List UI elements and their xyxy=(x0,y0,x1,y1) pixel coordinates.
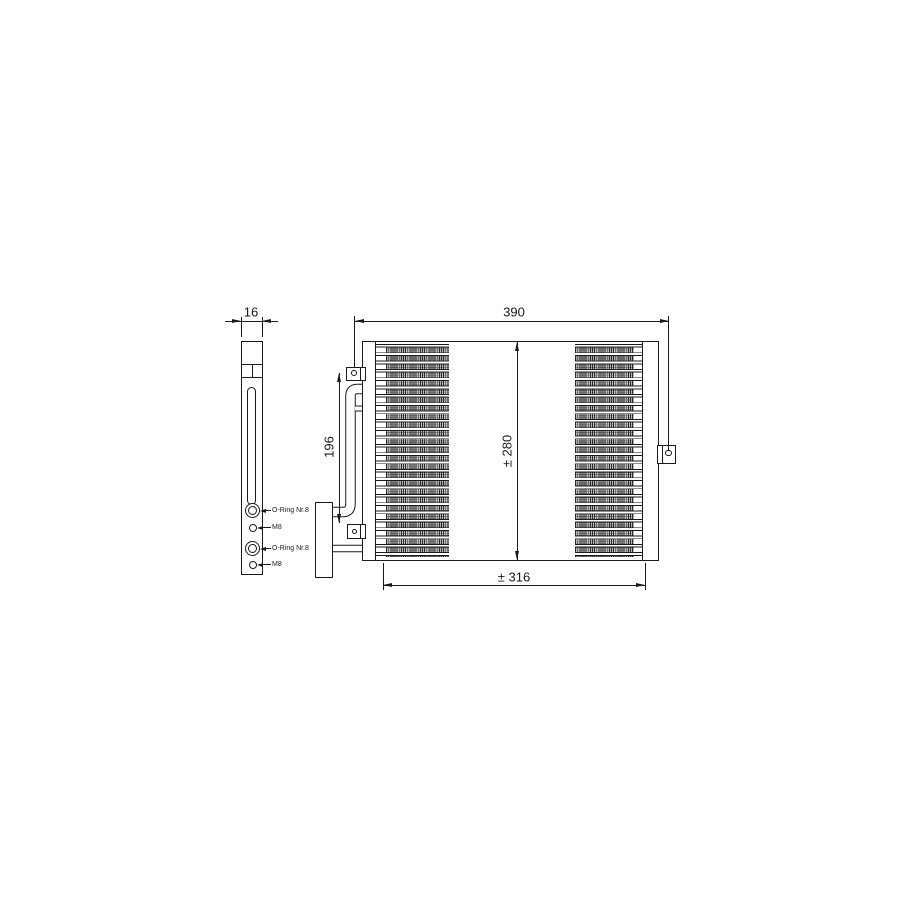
technical-drawing-canvas: O-Ring Nr.8 M8 O-Ring Nr.8 M8 16 xyxy=(0,0,900,900)
bracket-fold-line xyxy=(662,446,663,463)
leader-line xyxy=(265,548,271,549)
m8-hole xyxy=(249,524,257,532)
core-fins-left xyxy=(386,344,449,557)
bracket-hole xyxy=(665,450,672,457)
dim-arrow-icon xyxy=(232,319,241,323)
dim-value: 196 xyxy=(322,436,335,458)
dim-value: 390 xyxy=(503,305,525,318)
dim-extension-line xyxy=(383,563,384,590)
dim-line xyxy=(355,321,669,322)
port-label: M8 xyxy=(272,561,282,568)
dim-value: ± 316 xyxy=(498,571,530,584)
dim-line xyxy=(339,373,340,523)
tube-ends-left xyxy=(376,344,386,557)
bracket-fold-line xyxy=(360,525,361,538)
dim-extension-line xyxy=(262,317,263,337)
side-view-band-divider xyxy=(252,364,253,377)
side-view-slot xyxy=(247,387,256,505)
core-bottom-edge xyxy=(362,560,659,561)
connection-block xyxy=(315,502,334,578)
dim-arrow-icon xyxy=(262,319,271,323)
bracket-hole xyxy=(351,370,357,376)
leader-line xyxy=(265,510,271,511)
dim-extension-line xyxy=(354,316,355,367)
dim-arrow-icon xyxy=(337,373,341,382)
dim-extension-line xyxy=(645,563,646,590)
dim-value: 16 xyxy=(244,305,258,318)
core-top-edge xyxy=(362,341,659,342)
dim-arrow-icon xyxy=(337,514,341,523)
port-label: M8 xyxy=(272,524,282,531)
leader-line xyxy=(262,527,271,528)
dim-arrow-icon xyxy=(383,583,392,587)
core-fins-right xyxy=(575,344,634,557)
dim-line xyxy=(383,585,645,586)
o-ring-port-inner xyxy=(248,544,257,553)
dim-value: ± 280 xyxy=(501,435,514,467)
dim-arrow-icon xyxy=(515,551,519,560)
dim-arrow-icon xyxy=(515,342,519,351)
dim-arrow-icon xyxy=(355,319,364,323)
m8-hole xyxy=(249,561,257,569)
o-ring-port-inner xyxy=(248,506,257,515)
bracket-fold-line xyxy=(360,368,361,381)
leader-line xyxy=(262,564,271,565)
dim-line xyxy=(517,342,518,560)
dim-extension-line xyxy=(668,316,669,450)
dim-extension-line xyxy=(241,317,242,337)
